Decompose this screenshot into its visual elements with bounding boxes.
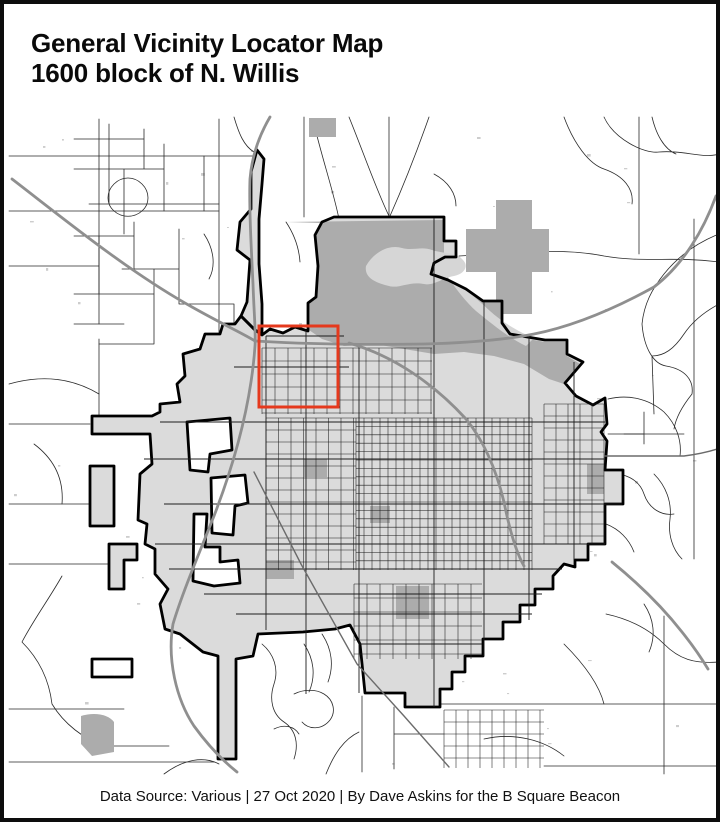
page: General Vicinity Locator Map 1600 block …: [0, 0, 720, 822]
title-line-1: General Vicinity Locator Map: [31, 28, 383, 58]
vicinity-map: [4, 4, 720, 822]
map-canvas: [4, 4, 720, 822]
title-line-2: 1600 block of N. Willis: [31, 58, 383, 88]
page-title: General Vicinity Locator Map 1600 block …: [31, 28, 383, 88]
map-credit: Data Source: Various | 27 Oct 2020 | By …: [4, 788, 716, 805]
